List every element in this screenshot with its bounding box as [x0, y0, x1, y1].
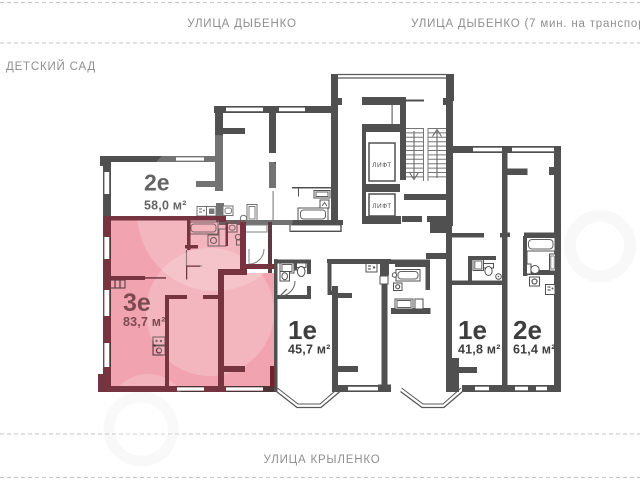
svg-text:61,4 м²: 61,4 м² — [513, 343, 556, 357]
svg-text:УЛИЦА ДЫБЕНКО (7 мин. на тра: УЛИЦА ДЫБЕНКО (7 мин. на транспорте) — [411, 18, 640, 30]
svg-text:45,7 м²: 45,7 м² — [288, 343, 331, 357]
svg-text:1е: 1е — [288, 315, 317, 345]
svg-text:ЛИФТ: ЛИФТ — [372, 162, 392, 169]
svg-text:83,7 м²: 83,7 м² — [123, 315, 166, 329]
svg-text:ЛИФТ: ЛИФТ — [372, 203, 392, 210]
svg-text:41,8 м²: 41,8 м² — [458, 343, 501, 357]
svg-text:УЛИЦА ДЫБЕНКО: УЛИЦА ДЫБЕНКО — [187, 18, 297, 30]
svg-text:ДЕТСКИЙ САД: ДЕТСКИЙ САД — [6, 60, 96, 73]
svg-text:3е: 3е — [123, 289, 151, 317]
svg-text:2е: 2е — [513, 315, 542, 345]
svg-text:1е: 1е — [458, 315, 487, 345]
svg-text:УЛИЦА КРЫЛЕНКО: УЛИЦА КРЫЛЕНКО — [264, 454, 381, 466]
